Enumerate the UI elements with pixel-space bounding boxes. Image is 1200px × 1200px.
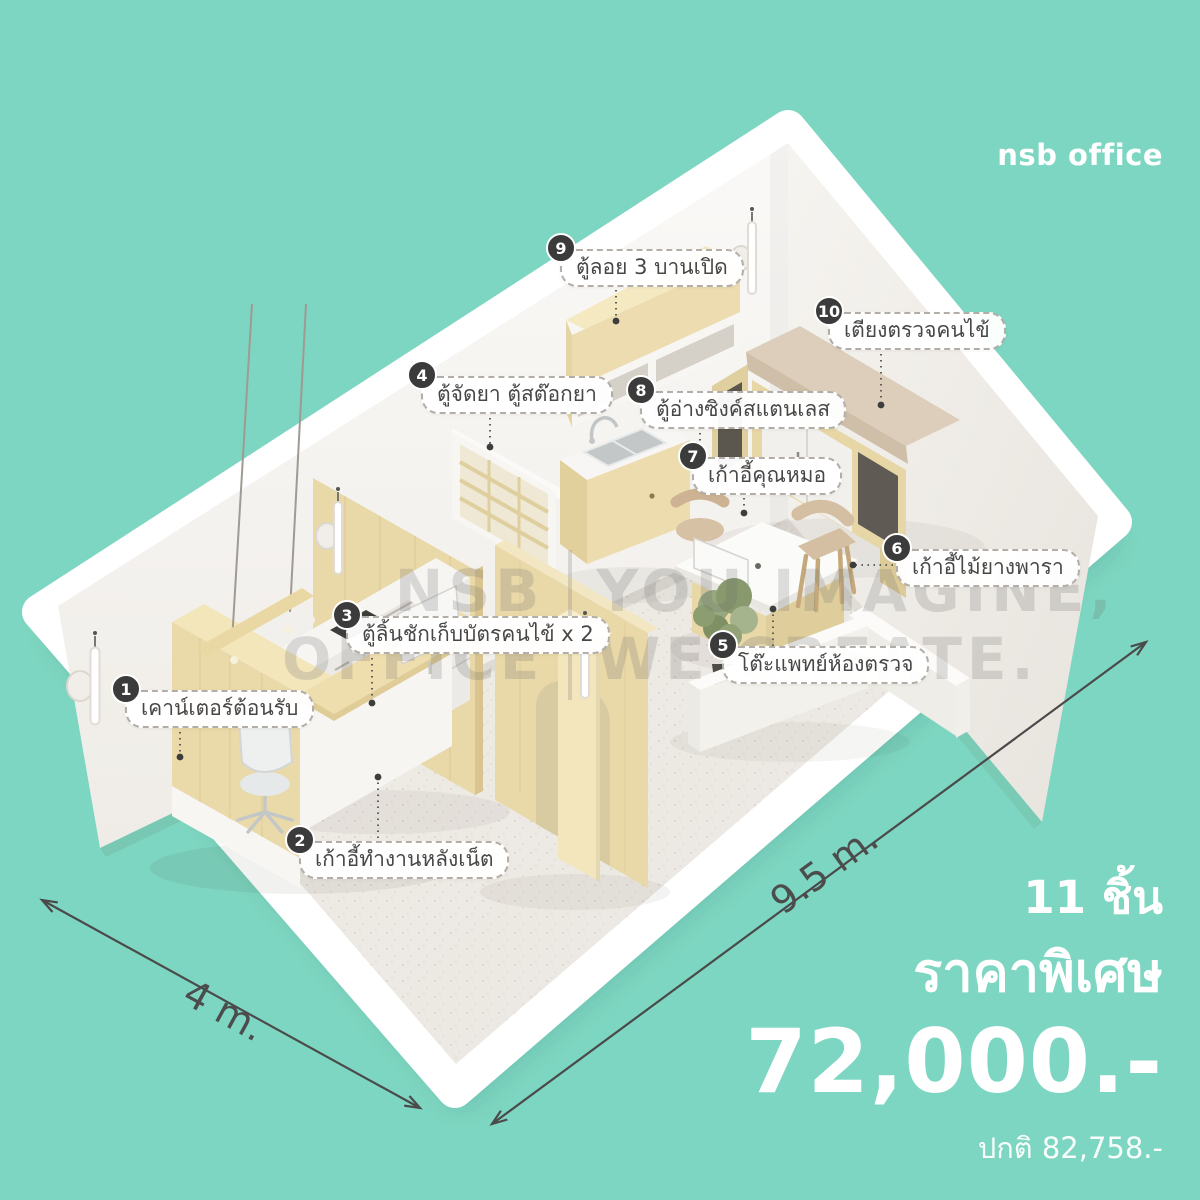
normal-price: ปกติ 82,758.- <box>745 1125 1163 1171</box>
callout-wooden-chair: 6 เก้าอี้ไม้ยางพารา <box>896 549 1080 587</box>
callout-label: โต๊ะแพทย์ห้องตรวจ <box>722 646 929 684</box>
special-price-value: 72,000.- <box>745 1014 1163 1111</box>
dimension-width-label: 4 m. <box>176 971 272 1050</box>
callout-number-badge: 3 <box>332 600 362 630</box>
brand-logo: nsb office <box>997 138 1163 172</box>
callout-number-badge: 5 <box>708 630 738 660</box>
callout-sink-cabinet: 8 ตู้อ่างซิงค์สแตนเลส <box>640 391 846 429</box>
callout-label: ตู้จัดยา ตู้สต๊อกยา <box>421 376 613 414</box>
callout-label: ตู้อ่างซิงค์สแตนเลส <box>640 391 846 429</box>
callout-label: เก้าอี้ไม้ยางพารา <box>896 549 1080 587</box>
callout-label: เตียงตรวจคนไข้ <box>828 312 1006 350</box>
callout-doctor-stool: 7 เก้าอี้คุณหมอ <box>692 457 842 495</box>
callout-office-chair: 2 เก้าอี้ทำงานหลังเน็ต <box>299 841 509 879</box>
callout-floating-cabinet: 9 ตู้ลอย 3 บานเปิด <box>560 249 744 287</box>
callout-number-badge: 10 <box>814 296 844 326</box>
callout-number-badge: 7 <box>678 441 708 471</box>
callout-reception-counter: 1 เคาน์เตอร์ต้อนรับ <box>125 690 314 728</box>
callout-label: ตู้ลอย 3 บานเปิด <box>560 249 744 287</box>
items-count: 11 ชิ้น <box>745 872 1163 924</box>
callout-number-badge: 1 <box>111 674 141 704</box>
callout-label: ตู้ลิ้นชักเก็บบัตรคนไข้ x 2 <box>346 616 610 654</box>
callout-label: เก้าอี้คุณหมอ <box>692 457 842 495</box>
callout-label: เก้าอี้ทำงานหลังเน็ต <box>299 841 509 879</box>
callout-exam-bed: 10 เตียงตรวจคนไข้ <box>828 312 1006 350</box>
promo-image: 4 m. 9.5 m. NSB OFFICE YOU IMAGINE, WE C… <box>0 0 1200 1200</box>
callout-number-badge: 8 <box>626 375 656 405</box>
callout-card-cabinet: 3 ตู้ลิ้นชักเก็บบัตรคนไข้ x 2 <box>346 616 610 654</box>
callout-number-badge: 4 <box>407 360 437 390</box>
callout-number-badge: 9 <box>546 233 576 263</box>
price-block: 11 ชิ้น ราคาพิเศษ 72,000.- ปกติ 82,758.- <box>745 872 1163 1171</box>
special-price-label: ราคาพิเศษ <box>745 938 1163 1008</box>
callout-medicine-shelf: 4 ตู้จัดยา ตู้สต๊อกยา <box>421 376 613 414</box>
callout-number-badge: 6 <box>882 533 912 563</box>
callout-label: เคาน์เตอร์ต้อนรับ <box>125 690 314 728</box>
callout-doctor-desk: 5 โต๊ะแพทย์ห้องตรวจ <box>722 646 929 684</box>
callout-number-badge: 2 <box>285 825 315 855</box>
